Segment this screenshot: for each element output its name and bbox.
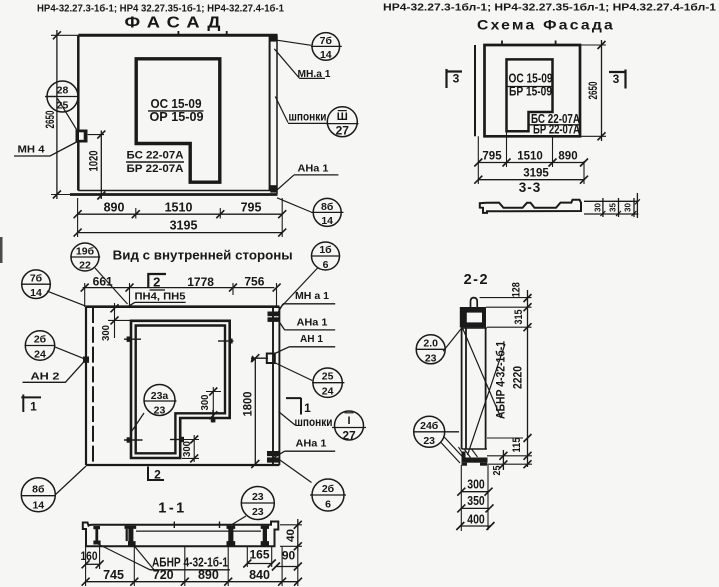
svg-text:АБНР 4-32-1б-1: АБНР 4-32-1б-1	[494, 341, 508, 419]
svg-text:АН 1: АН 1	[300, 334, 323, 345]
svg-text:3195: 3195	[170, 218, 198, 232]
svg-text:1: 1	[304, 401, 311, 415]
svg-text:1-1: 1-1	[158, 501, 186, 517]
svg-text:720: 720	[153, 568, 174, 582]
svg-text:3195: 3195	[523, 168, 549, 180]
svg-text:1778: 1778	[187, 275, 214, 289]
svg-text:1020: 1020	[87, 150, 101, 171]
svg-text:2.0: 2.0	[423, 337, 438, 349]
svg-text:ПН4, ПН5: ПН4, ПН5	[135, 292, 186, 303]
svg-text:6: 6	[325, 499, 331, 511]
svg-text:23: 23	[425, 353, 437, 365]
svg-text:ФАСАД: ФАСАД	[125, 14, 228, 31]
svg-text:1: 1	[30, 400, 37, 414]
svg-text:3: 3	[613, 72, 620, 86]
svg-text:23а: 23а	[151, 390, 169, 402]
svg-text:300: 300	[200, 394, 211, 410]
svg-text:25: 25	[57, 100, 69, 112]
svg-text:14: 14	[30, 287, 42, 299]
svg-text:БР 22-07А: БР 22-07А	[127, 163, 184, 175]
svg-text:Вид с внутренней стороны: Вид с внутренней стороны	[113, 247, 293, 262]
svg-text:160: 160	[81, 549, 98, 563]
svg-text:2220: 2220	[513, 366, 525, 389]
svg-text:2: 2	[153, 275, 160, 290]
svg-text:840: 840	[249, 568, 270, 582]
svg-text:30: 30	[594, 203, 603, 212]
svg-text:БР 15-09: БР 15-09	[509, 85, 552, 99]
svg-text:756: 756	[244, 274, 264, 288]
svg-text:1510: 1510	[165, 201, 193, 215]
svg-text:795: 795	[482, 151, 502, 163]
svg-text:14: 14	[320, 49, 332, 61]
svg-text:НР4-32.27.3-1бл-1; НР4-32.27.3: НР4-32.27.3-1бл-1; НР4-32.27.35-1бл-1; Н…	[383, 2, 716, 14]
svg-text:ОР 15-09: ОР 15-09	[150, 110, 204, 124]
svg-text:115: 115	[511, 438, 523, 453]
svg-text:1б: 1б	[319, 244, 332, 256]
svg-text:23: 23	[252, 491, 264, 503]
svg-text:1510: 1510	[517, 151, 543, 163]
svg-text:8б: 8б	[321, 201, 334, 213]
svg-text:МН 4: МН 4	[18, 145, 45, 156]
svg-text:1800: 1800	[243, 392, 255, 417]
svg-text:6: 6	[323, 259, 329, 271]
svg-text:3: 3	[453, 72, 460, 86]
svg-text:2650: 2650	[45, 111, 57, 129]
svg-text:24б: 24б	[420, 420, 439, 432]
svg-text:2б: 2б	[34, 334, 47, 346]
svg-text:23: 23	[252, 506, 264, 518]
svg-text:795: 795	[241, 201, 262, 215]
svg-text:890: 890	[104, 201, 125, 215]
svg-text:АНа 1: АНа 1	[297, 317, 328, 328]
svg-text:2-2: 2-2	[464, 272, 489, 288]
svg-text:30: 30	[624, 203, 633, 212]
svg-text:27: 27	[336, 124, 350, 138]
svg-text:25: 25	[322, 371, 334, 383]
svg-text:400: 400	[467, 512, 485, 526]
svg-text:300: 300	[182, 441, 193, 457]
svg-text:24: 24	[34, 349, 46, 361]
svg-text:890: 890	[558, 151, 577, 163]
svg-text:19б: 19б	[76, 246, 95, 258]
svg-text:24: 24	[322, 386, 334, 398]
svg-text:7б: 7б	[30, 273, 43, 285]
svg-text:128: 128	[511, 282, 523, 297]
svg-text:БР 22-07А: БР 22-07А	[533, 123, 580, 137]
svg-text:Ш: Ш	[337, 111, 348, 123]
svg-text:14: 14	[321, 215, 333, 227]
svg-text:шпонки: шпонки	[289, 110, 327, 124]
svg-text:Схема Фасада: Схема Фасада	[477, 17, 615, 33]
svg-text:23: 23	[154, 405, 166, 417]
svg-text:3-3: 3-3	[519, 180, 542, 195]
svg-text:2: 2	[154, 468, 161, 482]
svg-text:2650: 2650	[588, 82, 600, 100]
svg-text:165: 165	[249, 548, 269, 562]
svg-text:22: 22	[79, 260, 91, 272]
svg-text:745: 745	[103, 568, 124, 582]
svg-text:2б: 2б	[322, 483, 335, 495]
svg-text:23: 23	[423, 435, 435, 447]
svg-text:ОС 15-09: ОС 15-09	[151, 97, 202, 111]
svg-text:7б: 7б	[320, 35, 333, 47]
svg-text:890: 890	[198, 568, 219, 582]
svg-text:350: 350	[467, 494, 485, 508]
svg-text:АН 2: АН 2	[31, 372, 61, 383]
svg-text:35: 35	[609, 203, 618, 212]
svg-text:8б: 8б	[32, 484, 45, 496]
svg-text:МН а 1: МН а 1	[295, 291, 329, 302]
svg-text:315: 315	[513, 310, 525, 325]
svg-text:27: 27	[342, 429, 356, 443]
svg-text:25: 25	[492, 465, 503, 475]
svg-text:ОС 15-09: ОС 15-09	[509, 71, 553, 85]
svg-text:14: 14	[32, 500, 44, 512]
svg-text:АНа 1: АНа 1	[298, 164, 329, 175]
svg-text:шпонки: шпонки	[295, 415, 333, 429]
svg-text:БС 22-07А: БС 22-07А	[127, 150, 184, 162]
svg-text:I: I	[347, 415, 350, 427]
svg-text:300: 300	[101, 325, 112, 341]
svg-text:300: 300	[467, 477, 485, 491]
svg-text:90: 90	[282, 549, 296, 563]
svg-text:40: 40	[285, 529, 297, 542]
svg-text:НР4-32.27.3-1б-1; НР4 32.27.35: НР4-32.27.3-1б-1; НР4 32.27.35-1б-1; НР4…	[37, 3, 284, 15]
svg-text:АНа 1: АНа 1	[296, 438, 327, 449]
svg-text:28: 28	[57, 85, 69, 97]
